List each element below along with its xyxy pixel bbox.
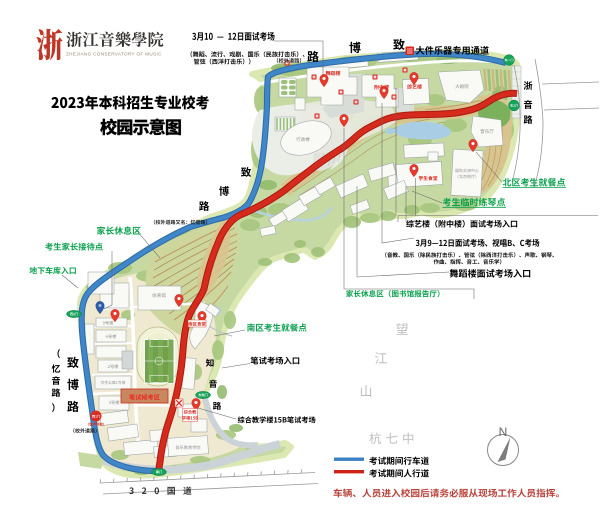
svg-text:N: N	[499, 425, 508, 439]
svg-text:ZHEJIANG CONSERVATORY OF MUSIC: ZHEJIANG CONSERVATORY OF MUSIC	[66, 52, 162, 57]
